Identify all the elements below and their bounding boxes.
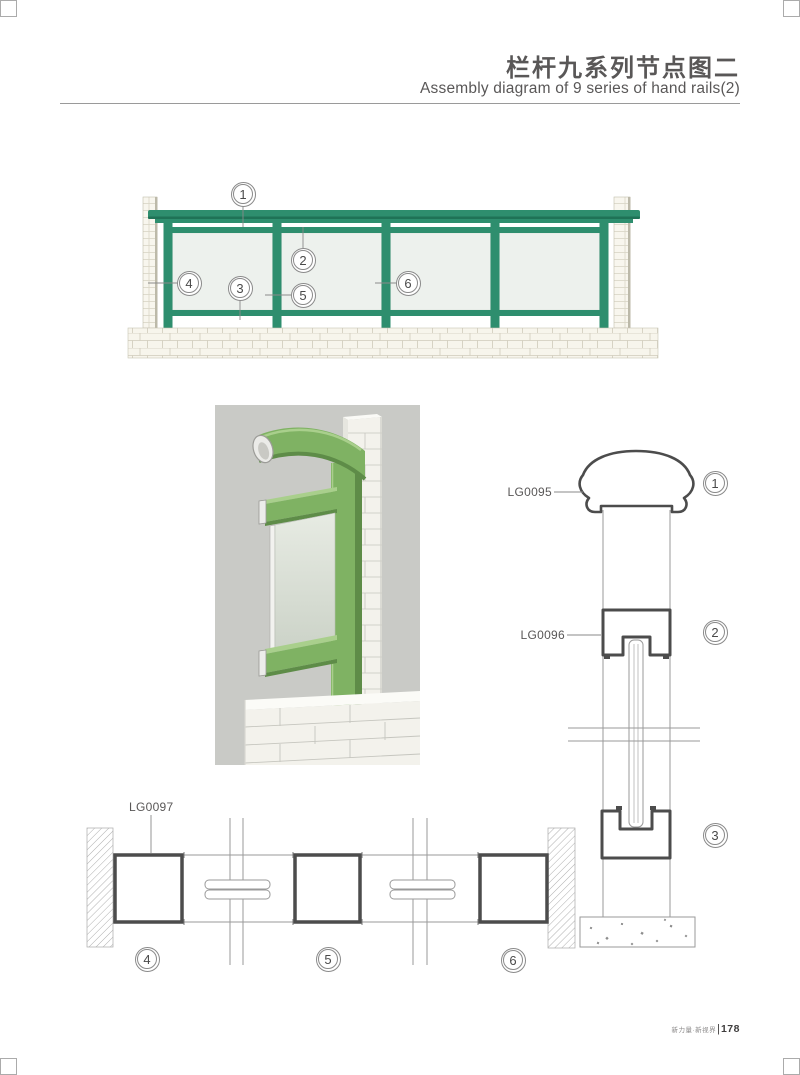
- corner-crop-mark-icon: [0, 0, 17, 17]
- callout-elevation-2: 2: [291, 248, 316, 273]
- callout-section-3: 3: [703, 823, 728, 848]
- glass-panel: [270, 513, 335, 649]
- catalog-page: 栏杆九系列节点图二 Assembly diagram of 9 series o…: [0, 0, 800, 1075]
- page-footer: 新力量·新视界 | 178: [671, 1023, 740, 1035]
- plan-post-squares: [115, 855, 547, 922]
- callout-plan-5: 5: [316, 947, 341, 972]
- page-title-chinese: 栏杆九系列节点图二: [506, 48, 740, 83]
- callout-section-2: 2: [703, 620, 728, 645]
- profile-label-lg0097: LG0097: [129, 800, 189, 814]
- profile-label-lg0095: LG0095: [504, 485, 552, 499]
- render-3d-image: [215, 405, 420, 765]
- footer-brand: 新力量·新视界: [671, 1024, 716, 1034]
- glass-section: [629, 640, 643, 827]
- callout-plan-4: 4: [135, 947, 160, 972]
- brick-wall: [128, 328, 658, 358]
- page-title-english: Assembly diagram of 9 series of hand rai…: [420, 80, 740, 98]
- footer-divider: |: [717, 1023, 720, 1035]
- corner-crop-mark-icon: [783, 0, 800, 17]
- section-leader-lines: [554, 492, 601, 635]
- handrail-profile-lg0095: [580, 451, 694, 512]
- callout-elevation-6: 6: [396, 271, 421, 296]
- callout-elevation-1: 1: [231, 182, 256, 207]
- masonry-wall: [245, 691, 420, 765]
- callout-elevation-3: 3: [228, 276, 253, 301]
- callout-section-1: 1: [703, 471, 728, 496]
- callout-elevation-4: 4: [177, 271, 202, 296]
- corner-crop-mark-icon: [783, 1058, 800, 1075]
- corner-crop-mark-icon: [0, 1058, 17, 1075]
- header-divider: [60, 103, 740, 104]
- callout-plan-6: 6: [501, 948, 526, 973]
- footer-page-number: 178: [721, 1023, 740, 1035]
- callout-elevation-5: 5: [291, 283, 316, 308]
- profile-label-lg0096: LG0096: [517, 628, 565, 642]
